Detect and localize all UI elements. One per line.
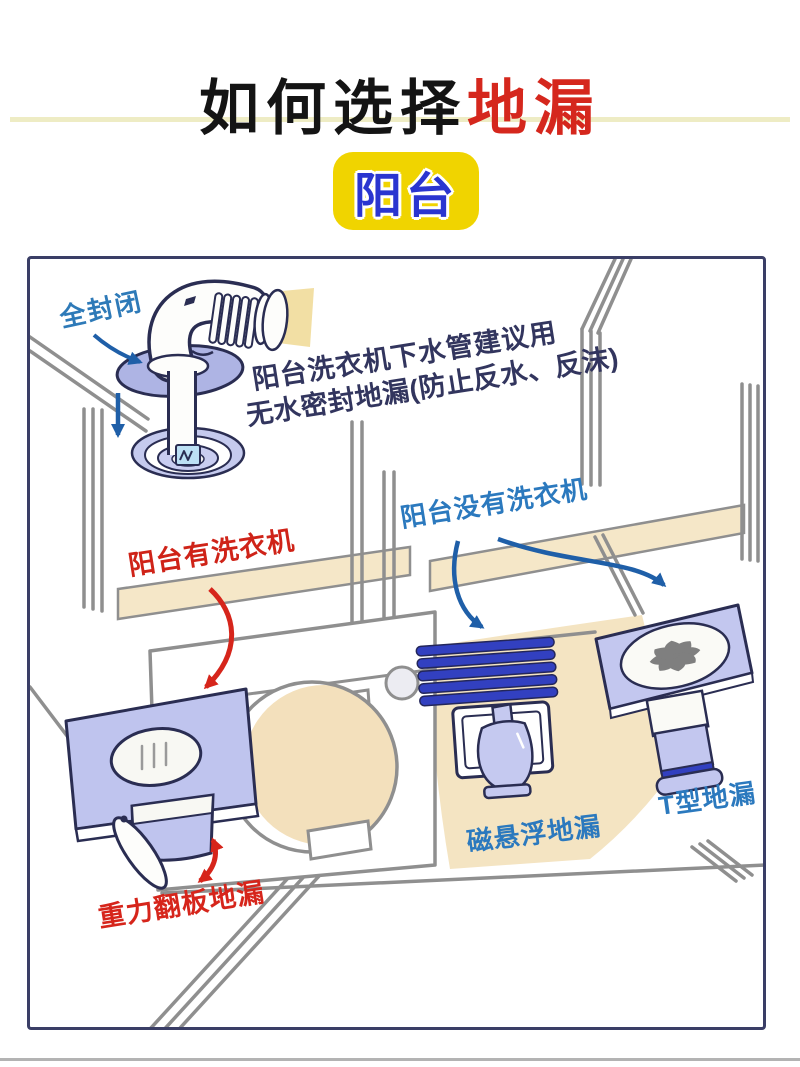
diagram-panel: 阳台洗衣机下水管建议用 无水密封地漏(防止反水、反沫) 全封闭 阳台有洗衣机 阳… [27, 256, 766, 1030]
svg-text:阳台没有洗衣机: 阳台没有洗衣机 [398, 474, 589, 533]
maglev-float-rim [484, 784, 531, 798]
page-title: 如何选择地漏 [0, 60, 800, 147]
balcony-badge: 阳台 [333, 152, 479, 230]
page-title-prefix: 如何选择 [199, 75, 467, 142]
svg-text:全封闭: 全封闭 [56, 286, 145, 333]
hose-ribs [209, 293, 259, 348]
balcony-diagram: 阳台洗衣机下水管建议用 无水密封地漏(防止反水、反沫) 全封闭 阳台有洗衣机 阳… [30, 259, 763, 1027]
balcony-badge-label: 阳台 [354, 156, 458, 226]
seal-label: 全封闭 [56, 286, 145, 333]
water-inlet [176, 445, 200, 465]
seal-arrow [94, 335, 140, 362]
flap-hinge [121, 816, 128, 823]
bottom-divider [0, 1058, 800, 1061]
page-title-highlight: 地漏 [467, 75, 601, 142]
washer-knob [386, 667, 418, 699]
without-washer-label: 阳台没有洗衣机 [398, 474, 589, 533]
